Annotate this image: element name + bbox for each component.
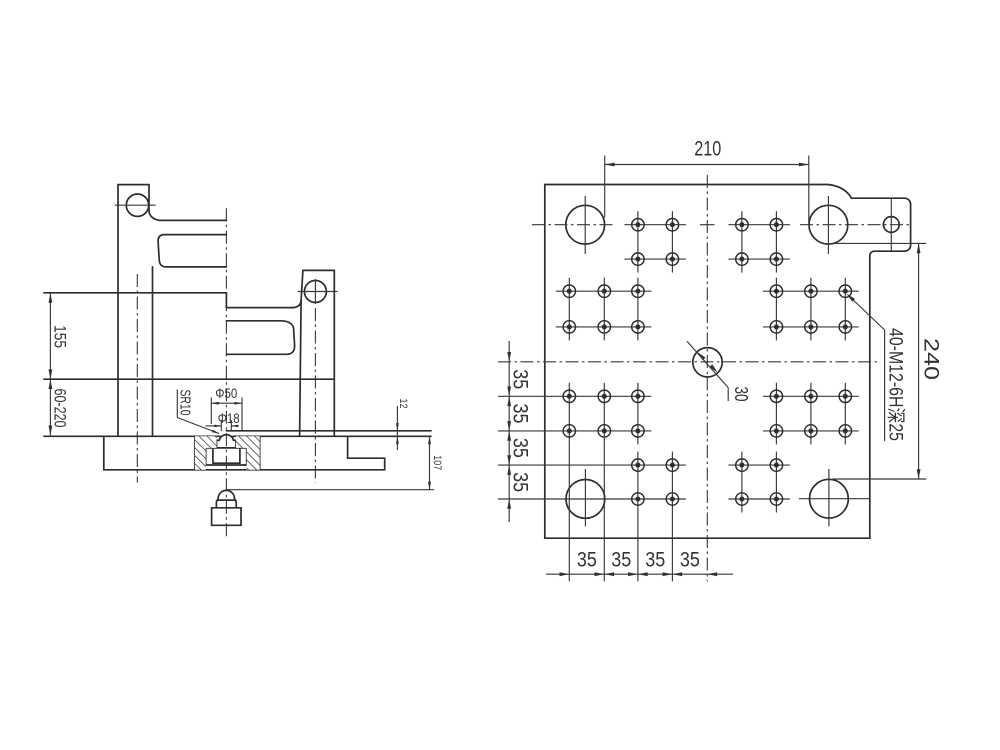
svg-text:155: 155 [51, 325, 70, 348]
svg-text:40-M12-6H深25: 40-M12-6H深25 [885, 328, 907, 441]
svg-text:35: 35 [577, 549, 597, 572]
svg-text:35: 35 [509, 369, 532, 389]
svg-text:35: 35 [645, 549, 665, 572]
svg-text:210: 210 [694, 138, 721, 161]
svg-text:35: 35 [509, 404, 532, 424]
svg-text:240: 240 [920, 338, 943, 380]
svg-text:Φ18: Φ18 [218, 410, 240, 426]
svg-text:35: 35 [509, 438, 532, 458]
svg-text:12: 12 [397, 399, 409, 409]
svg-text:35: 35 [680, 549, 700, 572]
svg-text:30: 30 [731, 387, 751, 402]
svg-text:SR10: SR10 [176, 390, 193, 416]
svg-text:60-220: 60-220 [51, 389, 70, 428]
svg-text:107: 107 [431, 455, 443, 470]
svg-text:35: 35 [611, 549, 631, 572]
svg-text:Φ50: Φ50 [215, 385, 237, 401]
svg-text:35: 35 [509, 472, 532, 492]
